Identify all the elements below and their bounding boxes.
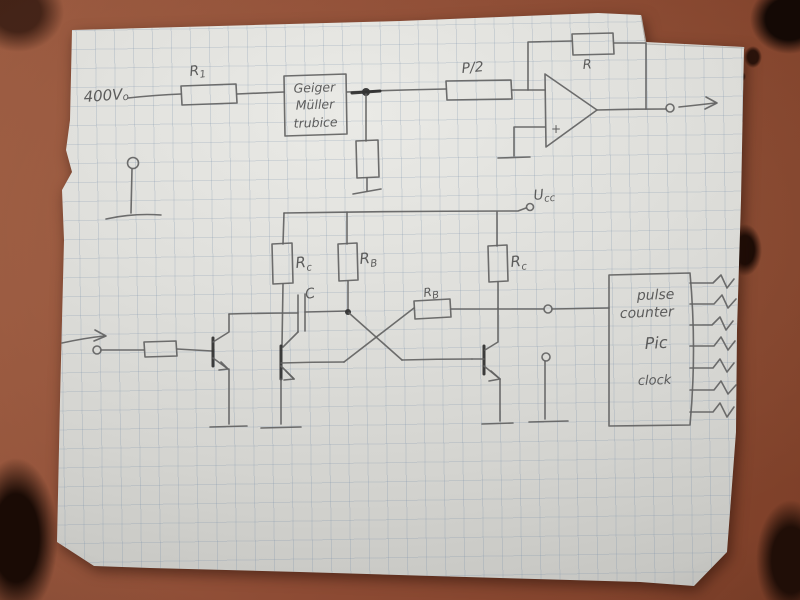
rc-right-resistor: Rc: [488, 212, 528, 308]
pot-p2: P/2: [446, 59, 512, 100]
wire: [528, 41, 572, 90]
geiger-muller-box: Geiger Müller trubice: [284, 74, 347, 136]
pin-wire: [690, 295, 736, 308]
input-terminal: [62, 330, 106, 354]
paper-crease: [641, 16, 744, 48]
opamp: +: [498, 74, 597, 158]
pin-wire: [690, 317, 733, 330]
wire: [237, 92, 284, 94]
resistor-r1-label: R1: [189, 62, 207, 82]
resistor-body: [488, 245, 508, 282]
pin-wire: [690, 337, 735, 350]
wire: [614, 43, 646, 109]
rb-coupling-resistor: RB: [414, 284, 451, 319]
ucc-label-sub: cc: [544, 193, 557, 205]
rc-right-sub: c: [521, 261, 528, 273]
hv-label-main: 400V: [83, 85, 125, 106]
resistor-r1: R1: [181, 62, 237, 105]
pin-wire: [690, 275, 734, 288]
wire: [177, 349, 212, 351]
collector-wire: [213, 314, 229, 342]
counter-label-line1: pulse: [636, 287, 675, 304]
resistor-body: [414, 299, 451, 319]
ground-bar: [482, 423, 513, 424]
transistor-t3: [472, 308, 513, 424]
wire: [131, 169, 132, 213]
ucc-label: Ucc: [533, 186, 557, 206]
wire: [597, 109, 666, 110]
counter-label-line2: counter: [620, 304, 676, 322]
pic-output-pins: [690, 275, 736, 417]
wire: [281, 362, 344, 363]
terminal-circle: [128, 158, 139, 169]
coupling-capacitor: C: [298, 285, 348, 332]
hv-source-label: 400Vo: [83, 85, 129, 106]
transistor-t2: [261, 332, 301, 428]
rc-right-label: Rc: [510, 251, 529, 274]
emitter-arrow: [284, 371, 294, 380]
anode-resistor: [353, 94, 381, 194]
rb-base-label: RB: [359, 248, 379, 271]
ground-terminal-symbol: [106, 158, 161, 220]
resistor-body: [446, 80, 512, 100]
rb-coupling-sub: B: [432, 290, 440, 302]
r1-label-sub: 1: [199, 69, 207, 81]
transistor-t1: [210, 314, 247, 427]
wire: [128, 94, 181, 98]
resistor-body: [181, 84, 237, 105]
ground-bar: [529, 421, 568, 422]
rb-base-resistor: RB: [338, 212, 378, 309]
ground-bar: [106, 215, 161, 220]
gm-label-line3: trubice: [293, 114, 338, 131]
wire: [284, 208, 526, 213]
wire: [282, 284, 283, 346]
resistor-body: [338, 243, 358, 281]
pin-wire: [690, 359, 734, 372]
gm-label-line2: Müller: [295, 96, 335, 112]
opamp-triangle: [545, 74, 597, 147]
cross-coupling-wire: [344, 308, 414, 362]
pin-wire: [690, 381, 736, 394]
wire: [305, 311, 348, 312]
input-resistor: [144, 341, 177, 357]
emitter-arrow: [489, 371, 500, 381]
terminal-circle: [93, 346, 101, 354]
ucc-label-main: U: [533, 187, 545, 204]
opamp-plus-label: +: [551, 122, 561, 136]
resistor-body: [572, 33, 614, 55]
collector-wire: [283, 332, 298, 347]
pin-wire: [690, 403, 734, 417]
circuit-drawing: 400Vo R1 Geiger Müller trubice P/2: [0, 0, 800, 600]
lower-terminal: [529, 353, 568, 422]
ucc-rail: Ucc: [284, 186, 556, 213]
ground-bar: [261, 427, 301, 428]
output-terminal: [666, 104, 674, 112]
counter-label-line4: clock: [638, 373, 672, 389]
output-arrow: [679, 97, 717, 109]
arrow-head: [94, 330, 106, 341]
wire: [283, 213, 284, 244]
rb-base-sub: B: [370, 258, 378, 270]
rc-left-sub: c: [306, 262, 313, 274]
ground-bar: [498, 157, 530, 158]
ucc-terminal: [527, 204, 534, 211]
output-terminal: [544, 305, 552, 313]
feedback-resistor-label: R: [582, 57, 592, 73]
rc-left-resistor: Rc: [272, 213, 313, 346]
wire: [552, 308, 609, 309]
counter-label-line3: Pic: [644, 333, 668, 353]
photo-of-circuit-sketch: 400Vo R1 Geiger Müller trubice P/2: [0, 0, 800, 600]
gm-label-line1: Geiger: [293, 79, 336, 95]
capacitor-label: C: [304, 285, 317, 302]
wire: [229, 313, 298, 314]
wire: [514, 127, 545, 156]
p2-label: P/2: [461, 59, 484, 77]
resistor-body: [356, 140, 379, 178]
ground-bar: [210, 426, 247, 427]
terminal-circle: [542, 353, 550, 361]
collector-wire: [485, 308, 498, 350]
wire: [402, 359, 472, 360]
pulse-counter-box: pulse counter Pic clock: [609, 273, 694, 426]
resistor-body: [144, 341, 177, 357]
resistor-body: [272, 243, 293, 284]
rc-left-label: Rc: [295, 252, 314, 275]
